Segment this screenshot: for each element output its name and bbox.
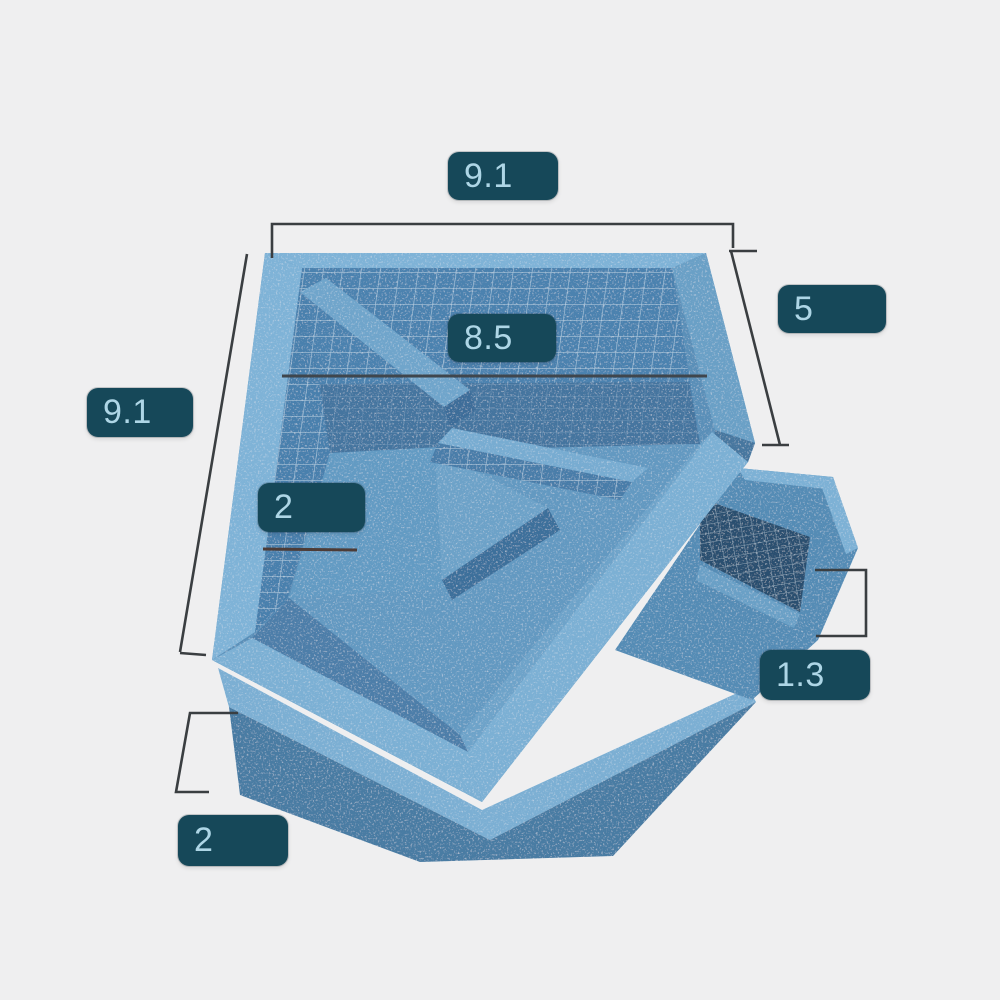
dim-line-inner-step [263, 549, 357, 550]
dim-label-left-side: 9.1 [87, 388, 193, 437]
back-wall-top-rim [265, 253, 706, 268]
dim-label-base-height: 2 [178, 815, 288, 866]
dim-label-right-side: 5 [778, 285, 886, 333]
dim-label-inner-width: 8.5 [448, 314, 556, 362]
dim-label-right-wall-height: 1.3 [760, 650, 870, 700]
dim-label-inner-step-width: 2 [258, 483, 365, 532]
pool-3d-render [0, 0, 1000, 1000]
dim-label-top-width: 9.1 [448, 152, 558, 200]
dim-line-top-width [272, 224, 733, 258]
dim-bracket-base-height [176, 713, 238, 792]
diagram-canvas: 9.1 9.1 8.5 5 2 1.3 2 [0, 0, 1000, 1000]
